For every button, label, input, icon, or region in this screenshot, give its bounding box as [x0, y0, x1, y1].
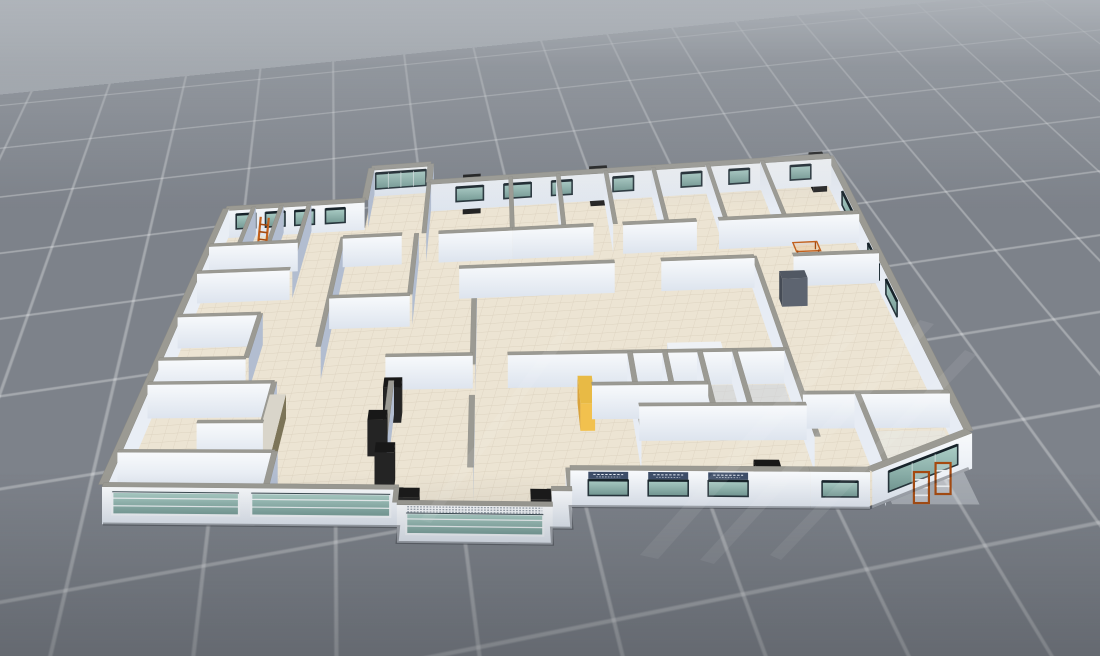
window[interactable] [376, 170, 426, 189]
window[interactable] [613, 176, 634, 191]
building-floor-plan-model [0, 0, 1100, 656]
wall [148, 380, 275, 418]
wall-cap [197, 420, 264, 423]
wall-cap [551, 486, 572, 491]
wall-face [178, 315, 260, 349]
wall-face [197, 270, 290, 303]
wall [459, 260, 615, 299]
wall [661, 254, 755, 291]
window[interactable] [588, 480, 628, 496]
wall [439, 227, 513, 262]
window[interactable] [456, 186, 483, 202]
door-leaf[interactable] [779, 270, 807, 307]
wall-face [459, 263, 615, 299]
window[interactable] [251, 493, 390, 517]
wall-face [623, 222, 697, 254]
3d-viewport[interactable] [0, 0, 1100, 656]
window[interactable] [504, 183, 531, 199]
wall [623, 218, 697, 254]
window[interactable] [790, 165, 811, 180]
window-glass [648, 480, 688, 496]
wall-face [148, 383, 274, 418]
window-glass [326, 208, 346, 223]
window[interactable] [729, 169, 749, 184]
wall-face [439, 230, 513, 262]
window-glass [588, 480, 628, 496]
window-glass [112, 492, 239, 516]
sign-board[interactable] [648, 472, 688, 479]
wall-cap [117, 449, 275, 452]
window[interactable] [681, 172, 702, 187]
wall [718, 210, 859, 249]
wall [102, 482, 399, 527]
wall-face [329, 296, 410, 329]
wall [197, 267, 291, 303]
window[interactable] [326, 208, 346, 223]
window[interactable] [112, 492, 239, 516]
window-glass [251, 493, 390, 517]
sign-board[interactable] [588, 472, 628, 479]
wall [343, 233, 402, 268]
wall [371, 162, 431, 197]
wall-face [343, 236, 402, 268]
wall-face [512, 226, 593, 259]
wall [397, 500, 553, 544]
wall [512, 223, 593, 259]
window[interactable] [648, 480, 688, 496]
wall-face [661, 258, 754, 291]
pillar [375, 442, 396, 490]
wall [329, 293, 410, 329]
